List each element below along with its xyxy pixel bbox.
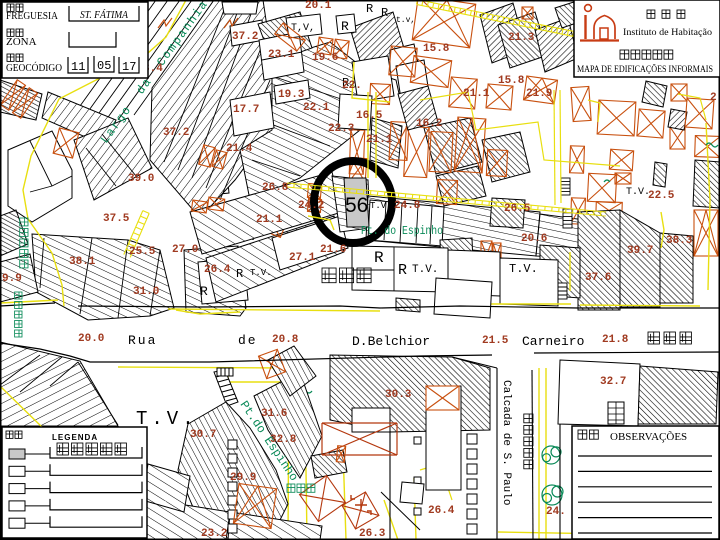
svg-text:21.4: 21.4	[226, 143, 253, 155]
svg-text:26.4: 26.4	[428, 505, 455, 517]
svg-text:LEGENDA: LEGENDA	[52, 433, 98, 442]
svg-text:22.: 22.	[342, 80, 362, 92]
svg-text:OBSERVAÇÕES: OBSERVAÇÕES	[610, 431, 687, 443]
svg-text:24.8: 24.8	[394, 200, 421, 212]
svg-text:21.1: 21.1	[463, 88, 490, 100]
svg-text:31.0: 31.0	[133, 286, 159, 298]
svg-text:32.8: 32.8	[270, 434, 297, 446]
svg-text:Carneiro: Carneiro	[522, 334, 584, 349]
svg-text:15.8: 15.8	[498, 75, 525, 87]
svg-text:24.: 24.	[546, 506, 566, 518]
svg-text:37.2: 37.2	[232, 31, 258, 43]
svg-text:ZONA: ZONA	[6, 36, 37, 48]
svg-text:21.9: 21.9	[526, 88, 552, 100]
svg-text:Pt. do Espinho: Pt. do Espinho	[361, 225, 443, 238]
svg-text:16.5: 16.5	[356, 110, 383, 122]
svg-text:2: 2	[710, 92, 717, 104]
svg-text:05: 05	[97, 59, 111, 73]
svg-text:20.6: 20.6	[521, 233, 547, 245]
svg-text:25.5: 25.5	[129, 246, 156, 258]
svg-text:31.6: 31.6	[261, 408, 287, 420]
svg-text:21.5: 21.5	[482, 335, 509, 347]
svg-text:20.8: 20.8	[272, 334, 299, 346]
svg-text:Calcada de S. Paulo: Calcada de S. Paulo	[500, 380, 512, 505]
svg-text:19.3: 19.3	[278, 89, 305, 101]
svg-text:23.2: 23.2	[201, 528, 227, 540]
svg-text:de: de	[238, 333, 258, 348]
svg-text:26.8: 26.8	[262, 182, 289, 194]
svg-text:37.5: 37.5	[103, 213, 130, 225]
svg-text:38.1: 38.1	[69, 256, 96, 268]
svg-text:29.9: 29.9	[230, 472, 256, 484]
svg-text:9.9: 9.9	[2, 273, 22, 285]
svg-text:Rua: Rua	[128, 333, 157, 348]
svg-text:R: R	[236, 267, 243, 281]
svg-text:16.2: 16.2	[416, 118, 442, 130]
svg-text:37.6: 37.6	[585, 272, 611, 284]
svg-text:R: R	[398, 262, 407, 279]
svg-text:t.v,: t.v,	[396, 16, 415, 25]
svg-text:R: R	[341, 19, 349, 34]
svg-text:26.4: 26.4	[204, 264, 231, 276]
svg-text:24.2: 24.2	[298, 200, 324, 212]
svg-text:17: 17	[122, 60, 136, 74]
svg-text:20.0: 20.0	[78, 333, 104, 345]
svg-text:22.5: 22.5	[648, 190, 675, 202]
svg-text:26.3: 26.3	[359, 528, 386, 540]
svg-text:30.7: 30.7	[190, 429, 216, 441]
svg-text:20.1: 20.1	[305, 0, 332, 12]
svg-text:Instituto de Habitação: Instituto de Habitação	[623, 28, 712, 38]
svg-text:R: R	[200, 284, 208, 299]
svg-text:21.1: 21.1	[366, 134, 393, 146]
svg-text:27.1: 27.1	[289, 252, 316, 264]
svg-text:GEOCÓDIGO: GEOCÓDIGO	[6, 62, 62, 74]
svg-text:39.7: 39.7	[627, 245, 653, 257]
svg-text:15.8: 15.8	[423, 43, 450, 55]
svg-text:26.5: 26.5	[504, 203, 531, 215]
svg-text:21.3: 21.3	[508, 32, 535, 44]
svg-text:11: 11	[71, 60, 85, 74]
svg-text:39.0: 39.0	[128, 173, 154, 185]
svg-text:R: R	[366, 2, 373, 16]
svg-text:30.3: 30.3	[385, 389, 412, 401]
svg-text:21.1: 21.1	[256, 214, 283, 226]
svg-text:27.0: 27.0	[172, 244, 198, 256]
svg-text:T.V.: T.V.	[250, 268, 272, 278]
svg-text:R: R	[374, 249, 384, 267]
svg-text:56: 56	[345, 194, 368, 217]
svg-text:32.7: 32.7	[600, 376, 626, 388]
svg-text:MAPA DE EDIFICAÇÕES INFORMAIS: MAPA DE EDIFICAÇÕES INFORMAIS	[577, 63, 713, 75]
svg-text:19.6: 19.6	[312, 52, 338, 64]
svg-text:22.1: 22.1	[303, 102, 330, 114]
svg-text:38.3: 38.3	[666, 235, 693, 247]
svg-text:T.V.: T.V.	[412, 264, 438, 276]
svg-text:23.1: 23.1	[268, 49, 295, 61]
svg-text:FREGUESIA: FREGUESIA	[6, 10, 58, 22]
svg-text:R: R	[381, 6, 388, 20]
svg-text:37.2: 37.2	[163, 127, 189, 139]
svg-text:ST. FÁTIMA: ST. FÁTIMA	[80, 9, 128, 21]
svg-text:17.7: 17.7	[233, 104, 259, 116]
svg-text:T.V.: T.V.	[509, 262, 538, 276]
svg-text:22.3: 22.3	[328, 123, 355, 135]
svg-text:21.8: 21.8	[602, 334, 629, 346]
svg-text:T.V.: T.V.	[626, 187, 650, 198]
svg-text:T.V.: T.V.	[370, 201, 392, 211]
svg-text:D.Belchior: D.Belchior	[352, 334, 430, 349]
svg-text:21.6: 21.6	[320, 244, 346, 256]
